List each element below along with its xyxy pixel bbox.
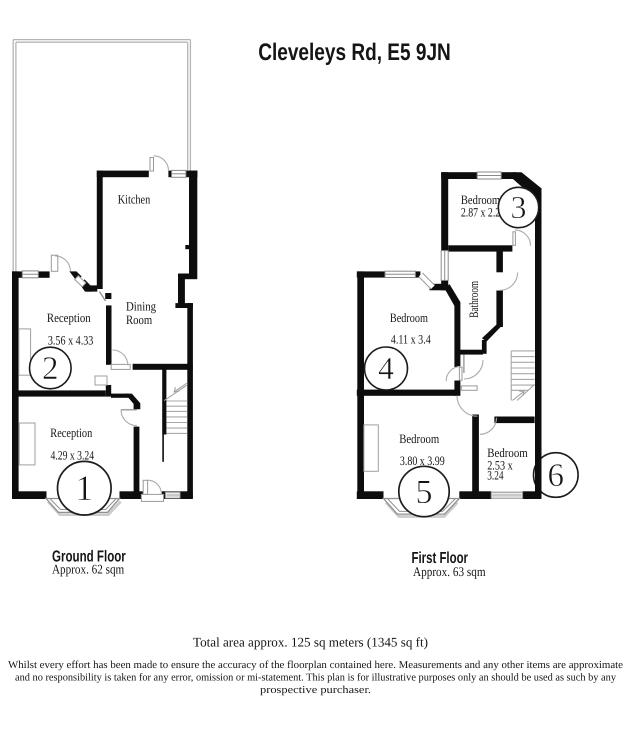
svg-text:Room: Room xyxy=(126,313,152,327)
svg-text:4.11 x 3.4: 4.11 x 3.4 xyxy=(391,333,431,347)
svg-text:Cleveleys Rd, E5 9JN: Cleveleys Rd, E5 9JN xyxy=(258,39,451,66)
svg-text:2: 2 xyxy=(42,351,59,387)
svg-text:Bedroom: Bedroom xyxy=(390,311,428,325)
svg-text:4: 4 xyxy=(378,350,394,386)
svg-text:Approx. 63 sqm: Approx. 63 sqm xyxy=(413,564,486,579)
svg-text:Total area approx. 125 sq mete: Total area approx. 125 sq meters (1345 s… xyxy=(193,635,428,650)
svg-text:Bedroom: Bedroom xyxy=(399,432,439,446)
svg-text:Kitchen: Kitchen xyxy=(118,192,151,206)
svg-text:5: 5 xyxy=(416,474,433,511)
svg-text:Reception: Reception xyxy=(47,311,91,325)
svg-text:Approx. 62 sqm: Approx. 62 sqm xyxy=(52,562,125,577)
svg-text:3.24: 3.24 xyxy=(487,469,504,483)
svg-text:and no responsibility is taken: and no responsibility is taken for any e… xyxy=(15,672,617,683)
svg-text:Whilst every effort has been m: Whilst every effort has been made to ens… xyxy=(8,660,623,671)
svg-text:4.29 x 3.24: 4.29 x 3.24 xyxy=(51,448,95,462)
svg-text:prospective purchaser.: prospective purchaser. xyxy=(260,685,371,696)
svg-text:Dining: Dining xyxy=(126,300,156,314)
svg-text:1: 1 xyxy=(75,468,93,508)
svg-text:Bathroom: Bathroom xyxy=(467,281,481,318)
svg-text:Reception: Reception xyxy=(50,426,92,440)
svg-text:3.56 x 4.33: 3.56 x 4.33 xyxy=(48,334,94,348)
svg-text:6: 6 xyxy=(548,458,565,494)
svg-text:3: 3 xyxy=(511,189,527,225)
